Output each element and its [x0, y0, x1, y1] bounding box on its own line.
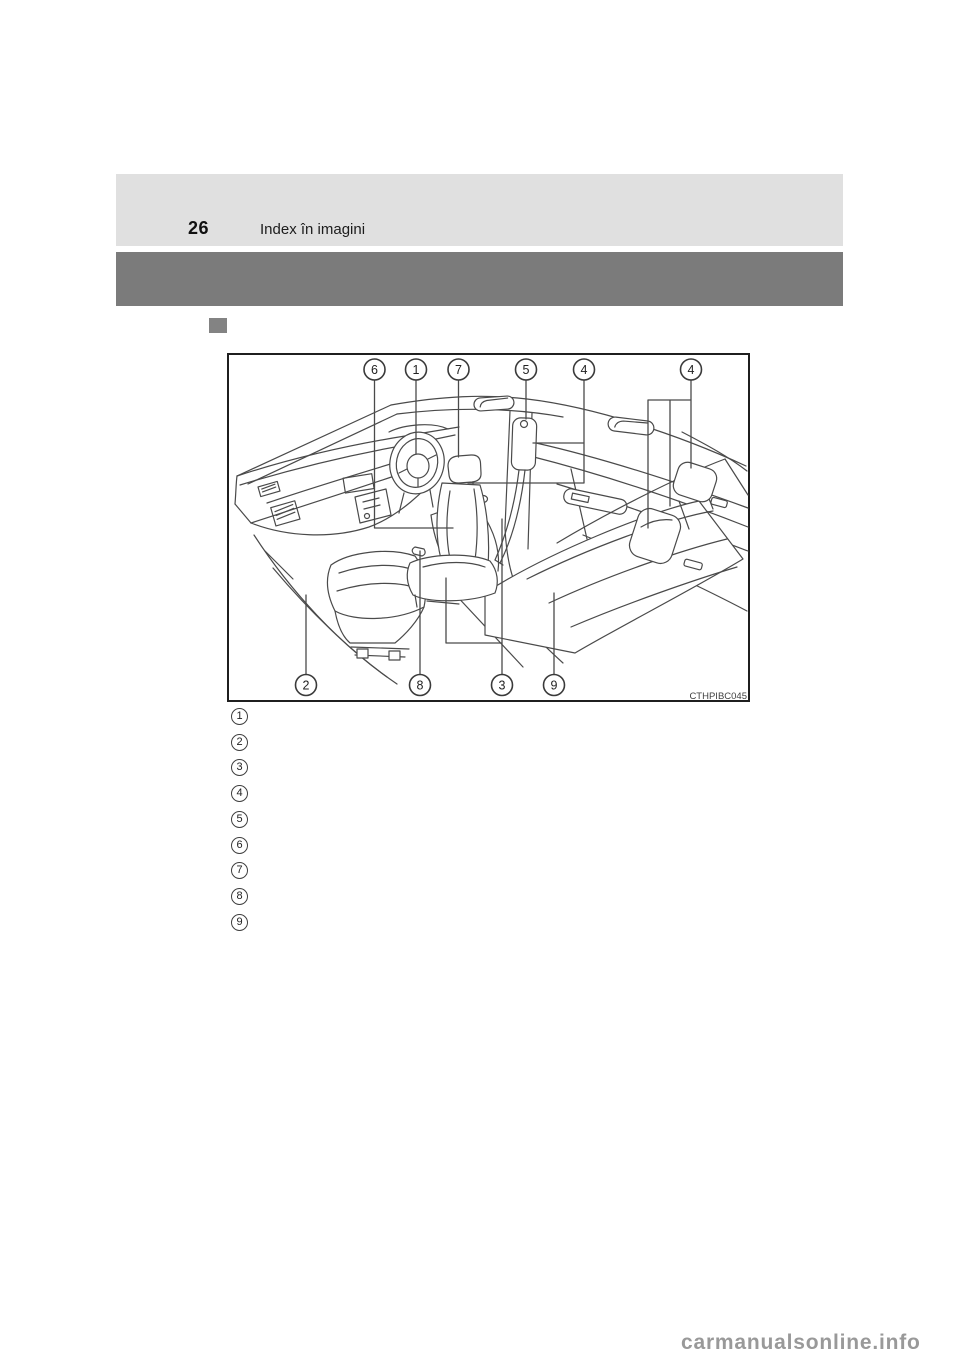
legend-item-6: 6	[231, 837, 249, 855]
figure-callout-label-9: 9	[551, 678, 558, 692]
figure-code: CTHPIBC045	[689, 691, 747, 702]
legend-number-6: 6	[231, 837, 248, 854]
legend-number-7: 7	[231, 862, 248, 879]
legend-item-7: 7	[231, 862, 249, 880]
figure-callout-label-4: 4	[581, 363, 588, 377]
manual-page: 26 Index în imagini	[0, 0, 960, 1358]
figure-callout-label-8: 8	[417, 678, 424, 692]
figure-callout-label-1: 1	[413, 363, 420, 377]
interior-diagram-frame: 6175442839 CTHPIBC045	[227, 353, 750, 702]
legend-list: 123456789	[231, 708, 271, 948]
b-pillar-seatbelt	[495, 411, 537, 581]
figure-callout-label-4: 4	[688, 363, 695, 377]
legend-item-5: 5	[231, 811, 249, 829]
figure-callout-label-5: 5	[523, 363, 530, 377]
legend-item-1: 1	[231, 708, 249, 726]
legend-item-8: 8	[231, 888, 249, 906]
legend-number-1: 1	[231, 708, 248, 725]
legend-item-4: 4	[231, 785, 249, 803]
car-interior-figure: 6175442839 CTHPIBC045	[227, 353, 750, 702]
figure-callout-label-3: 3	[499, 678, 506, 692]
legend-number-3: 3	[231, 759, 248, 776]
legend-number-4: 4	[231, 785, 248, 802]
page-header-band: 26 Index în imagini	[116, 174, 843, 246]
legend-number-9: 9	[231, 914, 248, 931]
legend-number-8: 8	[231, 888, 248, 905]
page-number: 26	[188, 218, 209, 239]
legend-number-2: 2	[231, 734, 248, 751]
section-bullet-icon	[209, 318, 227, 333]
legend-item-9: 9	[231, 914, 249, 932]
figure-callout-label-7: 7	[455, 363, 462, 377]
legend-number-5: 5	[231, 811, 248, 828]
page-title: Index în imagini	[260, 221, 365, 238]
legend-item-3: 3	[231, 759, 249, 777]
chapter-header-band	[116, 252, 843, 306]
legend-item-2: 2	[231, 734, 249, 752]
figure-callout-label-2: 2	[303, 678, 310, 692]
watermark: carmanualsonline.info	[681, 1331, 921, 1355]
figure-callout-label-6: 6	[371, 363, 378, 377]
grab-handles	[474, 396, 655, 436]
